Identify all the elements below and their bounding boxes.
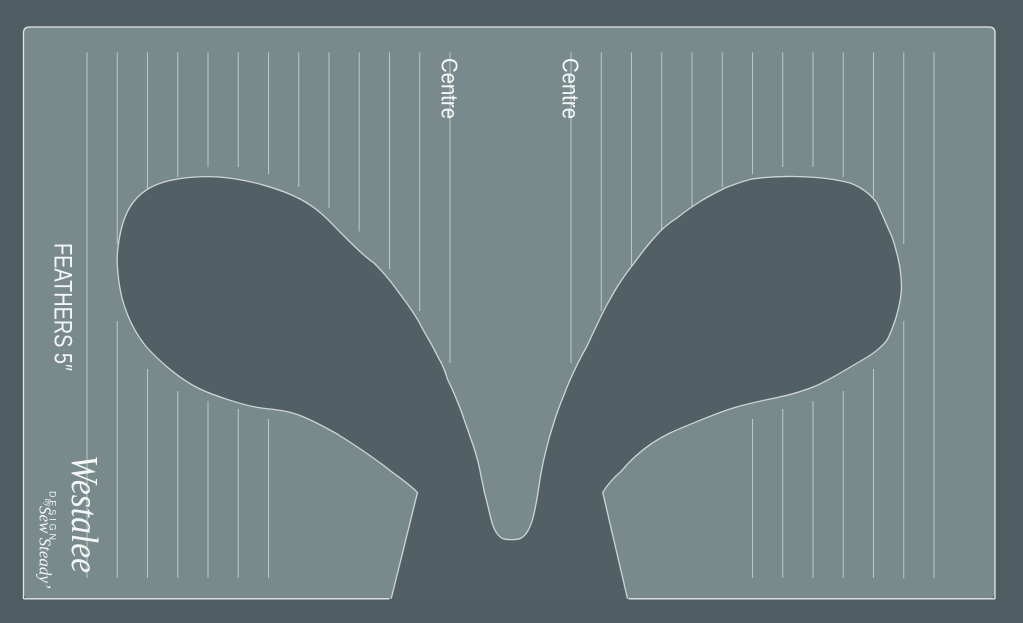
svg-text:Centre: Centre <box>437 58 463 119</box>
svg-text:Centre: Centre <box>558 58 584 119</box>
svg-text:Westalee: Westalee <box>63 455 105 573</box>
svg-text:Sew Steady’: Sew Steady’ <box>36 506 55 589</box>
svg-text:FEATHERS 5″: FEATHERS 5″ <box>49 243 77 371</box>
